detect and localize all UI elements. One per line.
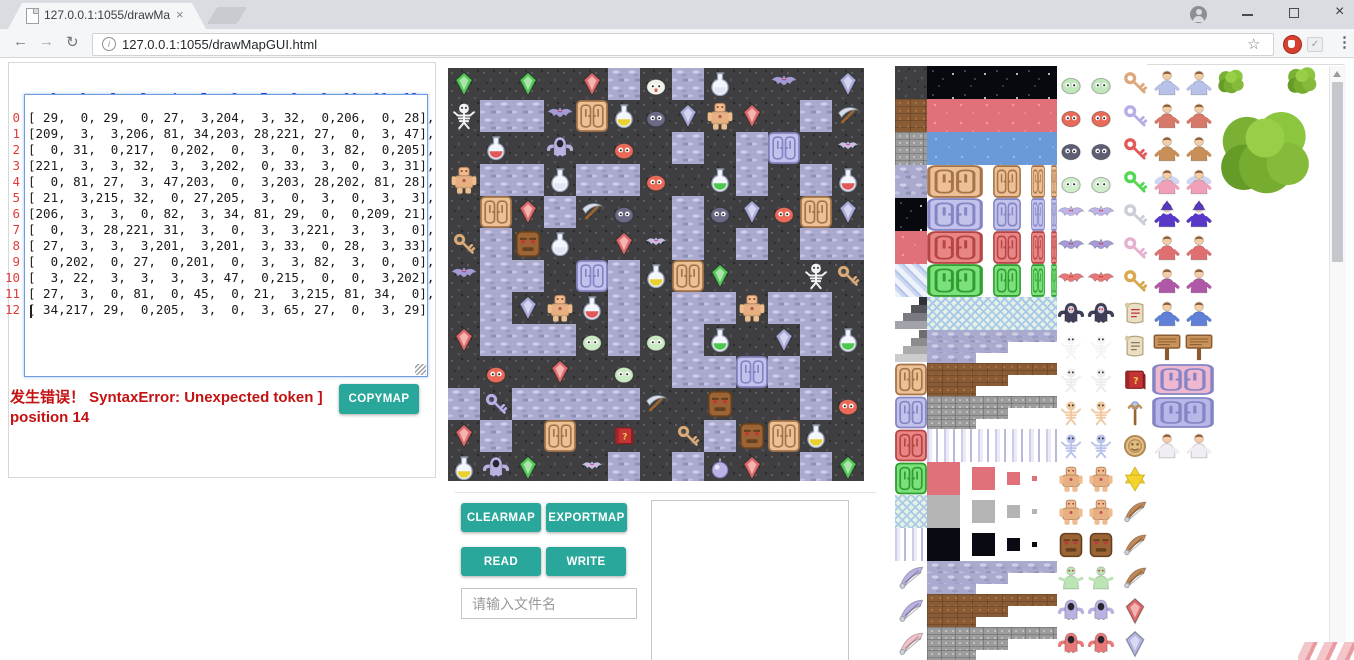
map-tile[interactable] (672, 228, 704, 260)
map-tile[interactable] (704, 68, 736, 100)
map-tile[interactable] (704, 164, 736, 196)
read-button[interactable]: READ (461, 547, 541, 576)
tileset-sprite-medal[interactable] (1121, 429, 1149, 462)
map-tile[interactable] (768, 452, 800, 481)
profile-icon[interactable] (1190, 6, 1207, 23)
map-tile[interactable] (608, 292, 640, 324)
map-tile[interactable] (736, 420, 768, 452)
map-tile[interactable] (672, 196, 704, 228)
tileset-sprite-staff[interactable] (1121, 396, 1149, 429)
map-tile[interactable] (448, 100, 480, 132)
tileset-sprite-person[interactable] (1151, 297, 1215, 330)
map-tile[interactable] (448, 68, 480, 100)
map-tile[interactable] (640, 196, 672, 228)
map-tile[interactable] (544, 260, 576, 292)
map-item-purple-gem (771, 327, 797, 358)
tab-close-icon[interactable]: × (176, 7, 184, 22)
map-tile[interactable] (768, 292, 800, 324)
tileset-cell[interactable] (895, 231, 927, 264)
tileset-sprite-ghost[interactable] (1057, 627, 1115, 660)
map-tile[interactable] (448, 292, 480, 324)
map-tile[interactable] (640, 260, 672, 292)
map-tile[interactable] (480, 260, 512, 292)
error-message: 发生错误！ SyntaxError: Unexpected token ] po… (10, 388, 344, 428)
map-tile[interactable] (448, 196, 480, 228)
map-tile[interactable] (448, 260, 480, 292)
tileset-cell[interactable] (927, 561, 1057, 594)
map-tile[interactable] (768, 356, 800, 388)
tileset-sprite-vamp[interactable] (1057, 297, 1115, 330)
map-tile[interactable] (800, 356, 832, 388)
tileset-sprite-bat[interactable] (1057, 198, 1115, 231)
tileset-sprite-face[interactable] (1057, 528, 1115, 561)
tileset-cell[interactable] (1031, 198, 1045, 231)
map-tile[interactable] (640, 100, 672, 132)
tileset-cell[interactable] (1031, 165, 1045, 198)
map-tile[interactable] (608, 196, 640, 228)
map-tile[interactable] (480, 356, 512, 388)
map-item-red-question-book: ? (611, 423, 637, 454)
map-tile[interactable] (576, 132, 608, 164)
map-tile[interactable] (704, 420, 736, 452)
tileset-sprite-golem[interactable] (1057, 495, 1115, 528)
tileset-cell[interactable] (895, 297, 927, 330)
map-tile[interactable] (672, 324, 704, 356)
map-item-red-gem (579, 71, 605, 102)
tileset-sprite-skel[interactable] (1057, 429, 1115, 462)
tileset-sprite-tree[interactable] (1216, 66, 1246, 96)
map-tile[interactable] (672, 100, 704, 132)
map-tile[interactable] (544, 196, 576, 228)
tileset-sprite-person[interactable] (1151, 66, 1215, 99)
clearmap-button[interactable]: CLEARMAP (461, 503, 541, 532)
map-tile[interactable] (608, 68, 640, 100)
map-tile[interactable] (736, 132, 768, 164)
tileset-sprite-bat[interactable] (1057, 231, 1115, 264)
map-tile[interactable] (832, 196, 864, 228)
map-tile[interactable] (608, 228, 640, 260)
map-tile[interactable] (640, 452, 672, 481)
map-tile[interactable] (448, 228, 480, 260)
map-tile[interactable] (736, 260, 768, 292)
tileset-cell[interactable] (895, 99, 927, 132)
matrix-row-headers: 0 1 2 3 4 5 6 7 8 9 10 11 12 (2, 110, 20, 318)
map-tile[interactable] (608, 452, 640, 481)
tileset-sprite-slime[interactable] (1057, 66, 1115, 99)
exportmap-button[interactable]: EXPORTMAP (546, 503, 627, 532)
map-tile[interactable] (672, 388, 704, 420)
map-tile[interactable] (576, 68, 608, 100)
tileset-cell[interactable] (895, 165, 927, 198)
map-tile[interactable] (448, 388, 480, 420)
write-button[interactable]: WRITE (546, 547, 626, 576)
tileset-cell[interactable] (927, 66, 1057, 99)
tileset-cell[interactable] (895, 429, 927, 462)
map-tile[interactable] (480, 452, 512, 481)
map-tile[interactable] (480, 164, 512, 196)
map-tile[interactable] (544, 388, 576, 420)
scrollbar-up-arrow-icon[interactable] (1333, 71, 1341, 77)
tileset-cell[interactable] (927, 396, 1057, 429)
map-tile[interactable] (640, 324, 672, 356)
map-tile[interactable] (768, 132, 800, 164)
map-tile[interactable] (704, 452, 736, 481)
map-tile[interactable] (768, 100, 800, 132)
map-tile[interactable] (576, 420, 608, 452)
copymap-button[interactable]: COPYMAP (339, 384, 419, 414)
map-item-purple-key (483, 391, 509, 422)
map-tile[interactable] (832, 388, 864, 420)
map-tile[interactable] (512, 420, 544, 452)
map-tile[interactable] (448, 324, 480, 356)
map-tile[interactable] (512, 164, 544, 196)
map-tile[interactable] (544, 68, 576, 100)
map-tile[interactable] (832, 420, 864, 452)
map-tile[interactable] (768, 260, 800, 292)
map-tile[interactable] (640, 388, 672, 420)
tileset-cell[interactable] (927, 132, 1057, 165)
tileset-sprite-ghost[interactable] (1057, 594, 1115, 627)
tileset-cell[interactable] (1151, 363, 1215, 396)
tileset-cell[interactable] (993, 165, 1021, 198)
map-tile[interactable] (736, 292, 768, 324)
tileset-sprite-key[interactable] (1121, 264, 1149, 297)
tileset-sprite-tree[interactable] (1213, 99, 1317, 203)
tileset-cell[interactable] (895, 363, 927, 396)
tileset-sprite-wing[interactable] (895, 594, 927, 627)
url-text[interactable]: 127.0.0.1:1055/drawMapGUI.html (122, 37, 317, 52)
map-tile[interactable] (608, 164, 640, 196)
map-tile[interactable] (512, 356, 544, 388)
tileset-sprite-scroll[interactable] (1121, 330, 1149, 363)
map-tile[interactable] (672, 292, 704, 324)
map-tile[interactable] (800, 196, 832, 228)
map-tile[interactable] (672, 260, 704, 292)
tileset-sprite-zombie[interactable] (1057, 561, 1115, 594)
map-tile[interactable] (704, 292, 736, 324)
map-tile[interactable] (608, 356, 640, 388)
map-tile[interactable] (544, 420, 576, 452)
map-tile[interactable] (736, 100, 768, 132)
tileset-cell[interactable] (927, 99, 1057, 132)
map-tile[interactable] (448, 164, 480, 196)
tileset-sprite-golem[interactable] (1057, 462, 1115, 495)
map-tile[interactable] (800, 68, 832, 100)
tileset-sprite-key[interactable] (1121, 198, 1149, 231)
output-box (651, 500, 849, 660)
map-tile[interactable] (832, 100, 864, 132)
map-tile[interactable] (448, 420, 480, 452)
map-tile[interactable] (704, 260, 736, 292)
map-tile[interactable] (544, 164, 576, 196)
map-tile[interactable] (800, 228, 832, 260)
map-tile[interactable] (480, 100, 512, 132)
map-tile[interactable] (832, 132, 864, 164)
map-tile[interactable] (704, 100, 736, 132)
map-tile[interactable] (480, 132, 512, 164)
tileset-cell[interactable] (927, 264, 983, 297)
tileset-sprite-book[interactable]: ? (1121, 363, 1149, 396)
tileset-sprite-key[interactable] (1121, 231, 1149, 264)
map-tile[interactable] (576, 164, 608, 196)
tileset-cell[interactable] (1031, 231, 1045, 264)
map-tile[interactable] (512, 100, 544, 132)
map-tile[interactable] (608, 388, 640, 420)
tileset-sprite-bat[interactable] (1057, 264, 1115, 297)
map-tile[interactable] (512, 260, 544, 292)
bookmark-star-icon[interactable]: ☆ (1247, 35, 1260, 53)
map-tile[interactable] (672, 132, 704, 164)
forward-button-icon[interactable]: → (39, 33, 54, 50)
map-tile[interactable] (480, 420, 512, 452)
tileset-cell[interactable] (927, 297, 1057, 330)
map-tile[interactable] (736, 68, 768, 100)
tileset-sprite-skel[interactable] (1057, 363, 1115, 396)
map-tile[interactable] (576, 388, 608, 420)
map-tile[interactable] (736, 452, 768, 481)
window-restore-button[interactable] (1289, 8, 1299, 18)
map-tile[interactable] (608, 324, 640, 356)
tileset-sprite-person[interactable] (1151, 429, 1215, 462)
map-tile[interactable] (832, 260, 864, 292)
map-tile[interactable] (704, 228, 736, 260)
tileset-cell[interactable] (927, 594, 1057, 627)
tileset-cell[interactable] (927, 198, 983, 231)
tileset-cell[interactable] (895, 396, 927, 429)
map-tile[interactable] (544, 132, 576, 164)
tileset-sprite-fairy[interactable] (1151, 165, 1215, 198)
map-tile[interactable] (512, 132, 544, 164)
map-tile[interactable] (704, 388, 736, 420)
map-item-small-bat (837, 137, 859, 164)
reload-button-icon[interactable]: ↻ (66, 33, 79, 51)
map-item-green-slime (610, 358, 638, 391)
tileset-sprite-star[interactable] (1121, 462, 1149, 495)
map-tile[interactable] (512, 292, 544, 324)
map-tile[interactable] (576, 100, 608, 132)
map-tile[interactable] (608, 260, 640, 292)
map-tile[interactable] (480, 68, 512, 100)
map-tile[interactable] (448, 452, 480, 481)
map-tile[interactable] (512, 324, 544, 356)
map-matrix-textarea[interactable]: [ 29, 0, 29, 0, 27, 3,204, 3, 32, 0,206,… (24, 94, 428, 377)
map-tile[interactable] (544, 228, 576, 260)
map-tile[interactable] (448, 356, 480, 388)
map-tile[interactable] (640, 228, 672, 260)
tileset-cell[interactable] (895, 66, 927, 99)
map-tile[interactable] (832, 356, 864, 388)
tileset-cell[interactable] (895, 198, 927, 231)
map-tile[interactable] (800, 260, 832, 292)
tileset-sprite-wizard[interactable] (1151, 198, 1215, 231)
tileset-sprite-slime[interactable] (1057, 165, 1115, 198)
map-tile[interactable] (640, 164, 672, 196)
tileset-sprite-key[interactable] (1121, 132, 1149, 165)
map-canvas[interactable]: ? (448, 68, 864, 481)
map-tile[interactable] (544, 356, 576, 388)
map-tile[interactable] (544, 100, 576, 132)
map-tile[interactable] (832, 452, 864, 481)
browser-menu-icon[interactable]: ⋮ (1337, 33, 1352, 51)
map-tile[interactable] (672, 452, 704, 481)
map-tile[interactable] (768, 68, 800, 100)
map-tile[interactable] (512, 452, 544, 481)
map-tile[interactable] (512, 68, 544, 100)
tileset-cell[interactable] (895, 495, 927, 528)
tileset-cell[interactable] (927, 495, 1057, 528)
map-tile[interactable] (736, 356, 768, 388)
tileset-cell[interactable] (895, 132, 927, 165)
extension-red-icon[interactable] (1283, 35, 1302, 54)
tileset-sprite-wing[interactable] (895, 627, 927, 660)
map-tile[interactable] (768, 324, 800, 356)
tileset-sprite-gem[interactable] (1121, 594, 1149, 627)
map-tile[interactable] (608, 132, 640, 164)
tileset-sprite-key[interactable] (1121, 66, 1149, 99)
tileset-cell[interactable] (1151, 396, 1215, 429)
map-tile[interactable] (608, 100, 640, 132)
map-tile[interactable] (768, 388, 800, 420)
page-info-icon[interactable]: i (102, 37, 116, 51)
map-tile[interactable] (800, 324, 832, 356)
map-tile[interactable] (576, 196, 608, 228)
map-tile[interactable] (512, 228, 544, 260)
map-tile[interactable] (480, 388, 512, 420)
map-tile[interactable] (576, 356, 608, 388)
map-tile[interactable] (736, 196, 768, 228)
map-tile[interactable] (512, 196, 544, 228)
map-tile[interactable] (672, 356, 704, 388)
map-tile[interactable] (672, 420, 704, 452)
tileset-sprite-slime[interactable] (1057, 99, 1115, 132)
filename-input[interactable] (461, 588, 637, 619)
tileset-cell[interactable] (927, 627, 1057, 660)
extension-check-icon[interactable]: ✓ (1307, 37, 1323, 52)
map-tile[interactable] (768, 164, 800, 196)
map-tile[interactable] (544, 292, 576, 324)
tileset-cell[interactable] (927, 528, 1057, 561)
scrollbar-thumb[interactable] (1332, 82, 1343, 262)
map-tile[interactable] (640, 292, 672, 324)
map-tile[interactable] (832, 324, 864, 356)
tileset-cell[interactable] (895, 264, 927, 297)
map-tile[interactable] (704, 324, 736, 356)
tileset-cell[interactable] (1031, 264, 1045, 297)
map-tile[interactable] (448, 132, 480, 164)
map-tile[interactable] (800, 100, 832, 132)
tileset-cell[interactable] (993, 198, 1021, 231)
tileset-sprite-gem[interactable] (1121, 627, 1149, 660)
tileset-sprite-wing[interactable] (895, 561, 927, 594)
map-item-ghost (546, 134, 574, 167)
svg-text:?: ? (622, 433, 627, 443)
map-tile[interactable] (800, 292, 832, 324)
map-tile[interactable] (576, 324, 608, 356)
back-button-icon[interactable]: ← (13, 33, 28, 50)
map-tile[interactable] (704, 196, 736, 228)
map-tile[interactable] (640, 68, 672, 100)
tileset-cell[interactable] (927, 462, 1057, 495)
tileset-sprite-person[interactable] (1151, 264, 1215, 297)
tileset-cell[interactable] (895, 462, 927, 495)
map-item-green-gem (707, 263, 733, 294)
map-tile[interactable] (480, 292, 512, 324)
map-tile[interactable] (736, 324, 768, 356)
map-tile[interactable] (544, 324, 576, 356)
map-tile[interactable] (800, 420, 832, 452)
map-tile[interactable] (576, 452, 608, 481)
tileset-sprite-slime[interactable] (1057, 132, 1115, 165)
map-tile[interactable] (800, 452, 832, 481)
map-tile[interactable] (480, 324, 512, 356)
tileset-sprite-key[interactable] (1121, 99, 1149, 132)
tileset-sprite-person[interactable] (1151, 99, 1215, 132)
window-close-button[interactable]: × (1335, 3, 1344, 21)
map-tile[interactable] (512, 388, 544, 420)
tileset-cell[interactable] (895, 528, 927, 561)
map-tile[interactable] (832, 228, 864, 260)
map-tile[interactable] (704, 356, 736, 388)
tileset-sprite-scroll[interactable] (1121, 297, 1149, 330)
tileset-sprite-sign[interactable] (1151, 330, 1215, 363)
tileset-sprite-tree[interactable] (1285, 63, 1319, 97)
map-tile[interactable] (800, 164, 832, 196)
map-tile[interactable] (544, 452, 576, 481)
map-tile[interactable] (768, 196, 800, 228)
map-tile[interactable] (736, 164, 768, 196)
tileset-sprite-wing[interactable] (1121, 561, 1149, 594)
map-tile[interactable] (800, 132, 832, 164)
map-tile[interactable] (480, 228, 512, 260)
tileset-sprite-person[interactable] (1151, 231, 1215, 264)
map-tile[interactable] (832, 292, 864, 324)
tileset-cell[interactable] (993, 264, 1021, 297)
map-tile[interactable] (640, 356, 672, 388)
map-tile[interactable] (704, 132, 736, 164)
tileset-cell[interactable] (993, 231, 1021, 264)
tileset-sprite-key[interactable] (1121, 165, 1149, 198)
map-tile[interactable]: ? (608, 420, 640, 452)
map-tile[interactable] (832, 164, 864, 196)
window-minimize-button[interactable] (1242, 14, 1253, 16)
tileset-cell[interactable] (895, 330, 927, 363)
tileset-cell[interactable] (927, 330, 1057, 363)
map-tile[interactable] (736, 388, 768, 420)
map-tile[interactable] (672, 68, 704, 100)
map-tile[interactable] (640, 132, 672, 164)
tileset-sprite-wing[interactable] (1121, 495, 1149, 528)
tileset-cell[interactable] (927, 429, 1057, 462)
map-tile[interactable] (768, 420, 800, 452)
tileset-cell[interactable] (927, 231, 983, 264)
tileset-sprite-skel[interactable] (1057, 396, 1115, 429)
map-tile[interactable] (640, 420, 672, 452)
map-tile[interactable] (576, 260, 608, 292)
tileset-sprite-skel[interactable] (1057, 330, 1115, 363)
map-tile[interactable] (480, 196, 512, 228)
map-tile[interactable] (576, 228, 608, 260)
map-tile[interactable] (576, 292, 608, 324)
map-tile[interactable] (736, 228, 768, 260)
map-tile[interactable] (768, 228, 800, 260)
tileset-cell[interactable] (927, 165, 983, 198)
tileset-sprite-wing[interactable] (1121, 528, 1149, 561)
map-tile[interactable] (672, 164, 704, 196)
map-tile[interactable] (800, 388, 832, 420)
map-tile[interactable] (832, 68, 864, 100)
tileset-cell[interactable] (927, 363, 1057, 396)
tileset-sprite-person[interactable] (1151, 132, 1215, 165)
